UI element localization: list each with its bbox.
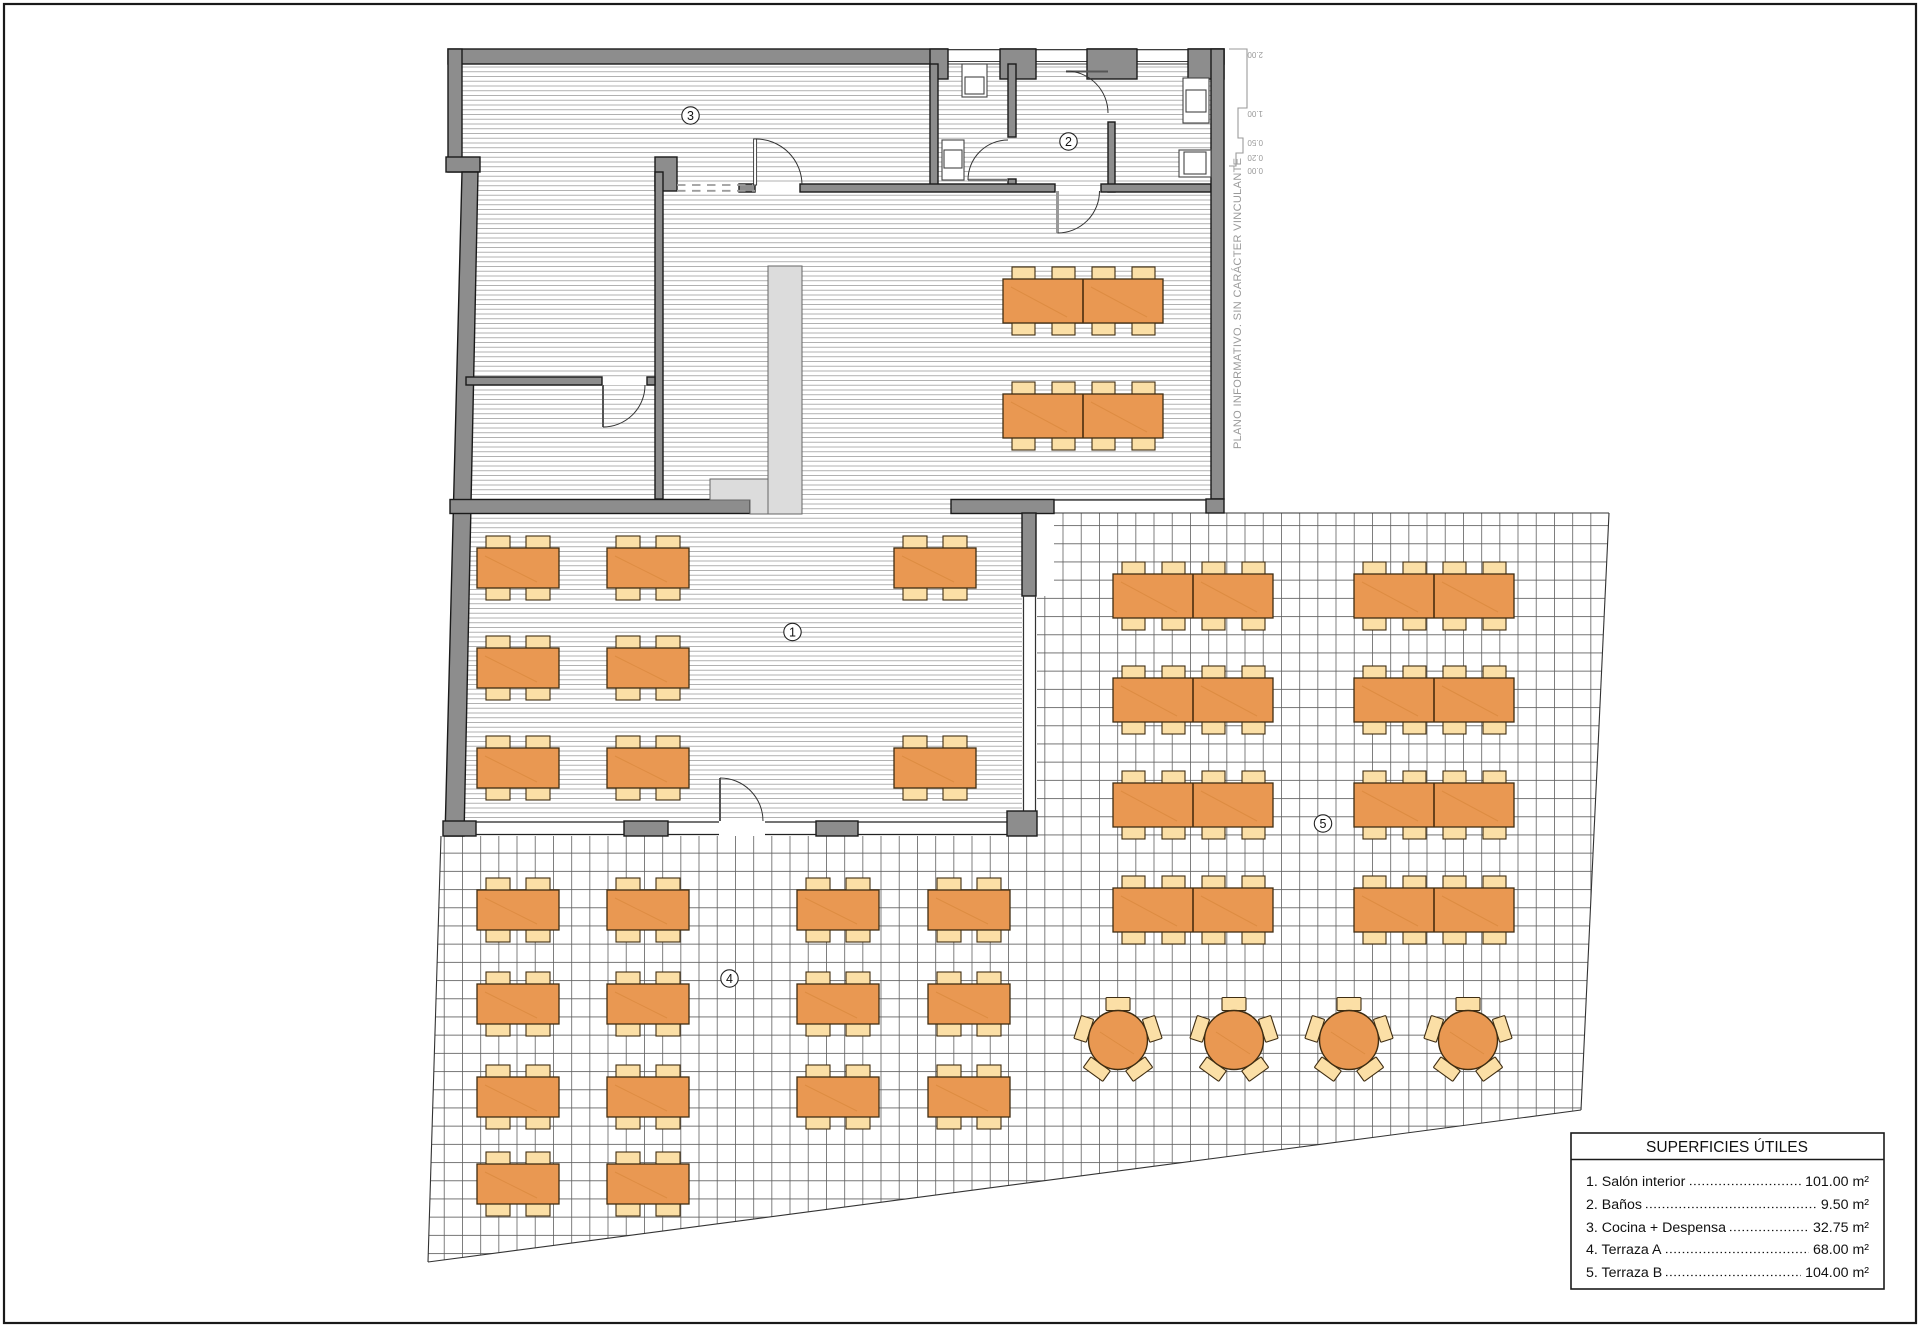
svg-text:2.00: 2.00 <box>1247 50 1263 59</box>
svg-text:1.00: 1.00 <box>1247 109 1263 118</box>
svg-text:3. Cocina + Despensa: 3. Cocina + Despensa <box>1586 1220 1726 1236</box>
svg-text:104.00 m²: 104.00 m² <box>1805 1265 1869 1281</box>
svg-text:0.00: 0.00 <box>1247 166 1263 175</box>
svg-text:5: 5 <box>1320 817 1327 831</box>
svg-text:1. Salón interior: 1. Salón interior <box>1586 1174 1686 1190</box>
svg-text:0.20: 0.20 <box>1247 153 1263 162</box>
svg-text:2. Baños: 2. Baños <box>1586 1197 1642 1213</box>
svg-text:4: 4 <box>726 972 733 986</box>
svg-text:2: 2 <box>1065 135 1072 149</box>
svg-text:68.00 m²: 68.00 m² <box>1813 1242 1869 1258</box>
svg-text:4. Terraza A: 4. Terraza A <box>1586 1242 1662 1258</box>
svg-text:1: 1 <box>789 625 796 639</box>
svg-text:101.00 m²: 101.00 m² <box>1805 1174 1869 1190</box>
svg-text:3: 3 <box>687 109 694 123</box>
svg-text:32.75 m²: 32.75 m² <box>1813 1220 1869 1236</box>
svg-text:PLANO INFORMATIVO. SIN CARÁCTE: PLANO INFORMATIVO. SIN CARÁCTER VINCULAN… <box>1231 158 1244 449</box>
svg-text:9.50 m²: 9.50 m² <box>1821 1197 1869 1213</box>
svg-text:0.50: 0.50 <box>1247 138 1263 147</box>
svg-text:SUPERFICIES ÚTILES: SUPERFICIES ÚTILES <box>1646 1139 1808 1156</box>
svg-text:5. Terraza B: 5. Terraza B <box>1586 1265 1662 1281</box>
